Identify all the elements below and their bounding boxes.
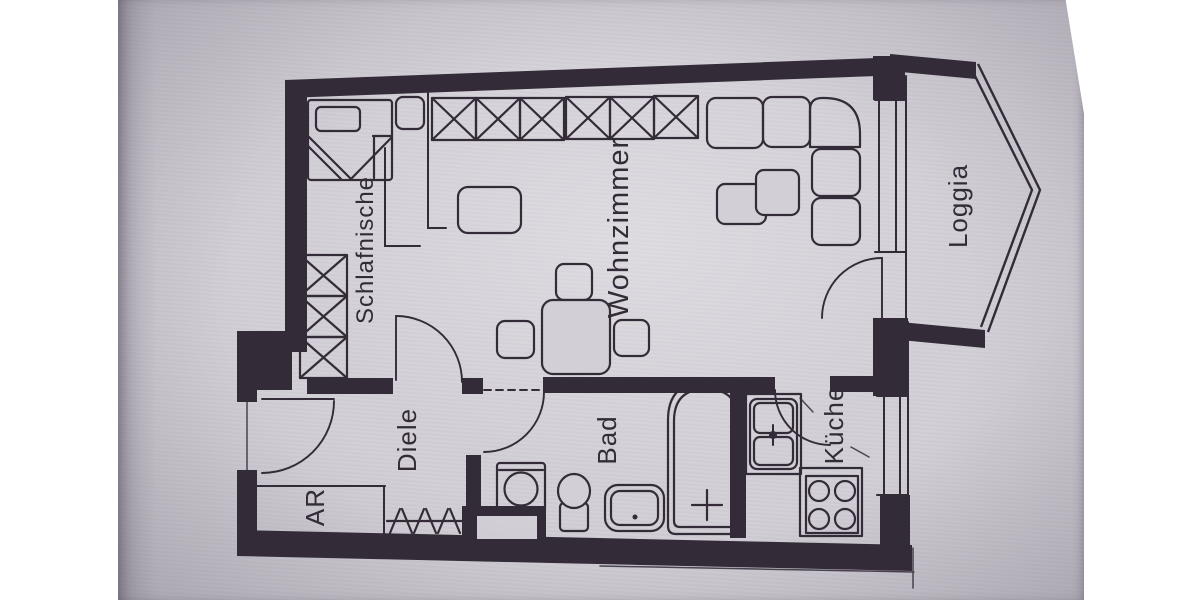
burner — [809, 481, 829, 501]
wardrobe-top — [432, 96, 698, 140]
loggia-door — [822, 258, 882, 318]
shaft-inset — [477, 516, 537, 539]
drain-cross — [692, 490, 722, 520]
loggia-railing — [971, 64, 1040, 332]
room-label-diele: Diele — [392, 408, 422, 472]
burner — [809, 509, 829, 529]
room-label-bad: Bad — [592, 415, 622, 464]
schlafnische-bracket-2 — [385, 148, 420, 246]
washbasin — [605, 485, 664, 531]
kitchen-right-stub — [880, 495, 910, 550]
diele-bad-stub — [466, 455, 481, 512]
left-wall-lower — [237, 470, 257, 536]
armchair — [458, 187, 521, 233]
left-wall-upper — [285, 80, 307, 352]
dining-table — [542, 300, 610, 374]
kitchen-sink — [746, 394, 801, 474]
top-wall — [285, 58, 877, 98]
wardrobe-side — [300, 255, 347, 378]
left-step-wall — [237, 331, 292, 352]
chair — [556, 264, 592, 300]
kitchen-window — [877, 396, 908, 495]
entrance-door — [262, 399, 334, 473]
room-label-ar: AR — [300, 488, 330, 526]
coffee-tables — [717, 170, 799, 224]
pillow — [316, 107, 360, 131]
diele-wohnzimmer-door — [396, 316, 462, 382]
coat-rack — [387, 509, 463, 533]
room-label-loggia: Loggia — [943, 164, 973, 248]
floorplan-photo: Schlafnische Wohnzimmer Loggia Diele AR … — [0, 0, 1200, 600]
room-labels: Schlafnische Wohnzimmer Loggia Diele AR … — [300, 138, 973, 526]
loggia-bottom-stub — [900, 322, 985, 348]
chair — [614, 320, 649, 356]
schlafnische-bracket-1 — [428, 93, 446, 228]
stove — [800, 468, 862, 536]
bed — [308, 100, 392, 180]
bad-door — [484, 390, 544, 452]
mid-wall-seg2 — [462, 378, 483, 394]
burner — [835, 509, 855, 529]
mid-wall-seg3 — [543, 377, 775, 393]
mid-wall-seg1 — [307, 378, 393, 394]
burner — [835, 481, 855, 501]
chair — [497, 321, 534, 358]
windows — [875, 64, 1040, 495]
nightstand — [396, 97, 424, 129]
floorplan-drawing: Schlafnische Wohnzimmer Loggia Diele AR … — [0, 0, 1200, 600]
sofa-corner-piece — [810, 98, 860, 147]
room-label-schlafnische: Schlafnische — [352, 176, 379, 324]
toilet — [558, 474, 590, 531]
living-room-window — [875, 100, 905, 252]
washing-machine — [497, 463, 545, 512]
left-wall-mid — [237, 352, 257, 402]
left-step-stub — [257, 352, 292, 390]
room-label-wohnzimmer: Wohnzimmer — [603, 138, 635, 318]
room-label-kueche: Küche — [819, 386, 849, 465]
